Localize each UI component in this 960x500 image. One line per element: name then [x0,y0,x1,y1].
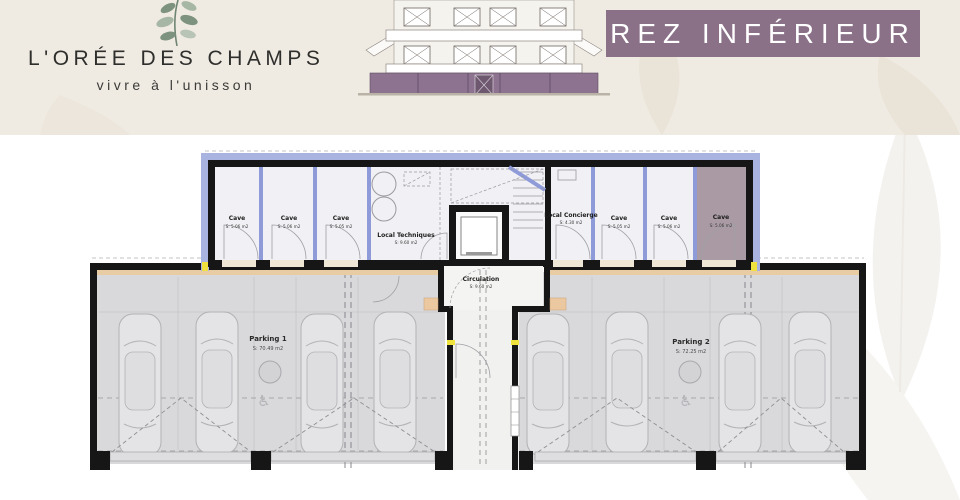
room-label-local-techniques: Local Techniques [377,232,435,239]
project-title: L'ORÉE DES CHAMPS [28,47,324,71]
window [511,386,519,436]
room-label-cave-2: Cave [281,215,297,222]
junction-marker [511,340,519,345]
column [679,361,701,383]
floorplan-page: ♿ ♿ [0,0,960,500]
floor-banner: REZ INFÉRIEUR [606,10,920,57]
room-label-cave-3: Cave [333,215,349,222]
junction-marker [202,262,208,271]
room-area-cave-5: S: 5.06 m2 [658,224,681,229]
room-area-parking-2: S: 72.25 m2 [676,349,706,355]
room-label-cave-5: Cave [661,215,677,222]
room-area-cave-3: S: 5.05 m2 [330,224,353,229]
room-area-cave-4: S: 5.05 m2 [608,224,631,229]
room-area-local-concierge: S: 4.30 m2 [560,220,583,225]
project-subtitle: vivre à l'unisson [28,77,324,93]
header-band: L'ORÉE DES CHAMPS vivre à l'unisson [0,0,960,135]
column [259,361,281,383]
logo: L'ORÉE DES CHAMPS vivre à l'unisson [28,0,324,93]
elevator-car [461,217,497,255]
room-label-cave-1: Cave [229,215,245,222]
facade-shoulder [424,298,438,310]
room-area-local-techniques: S: 9.60 m2 [395,240,418,245]
room-label-parking-2: Parking 2 [672,338,710,346]
room-area-circulation: S: 9.60 m2 [470,284,493,289]
accessible-parking-icon: ♿ [257,392,270,410]
junction-marker [751,262,757,271]
room-label-parking-1: Parking 1 [249,335,287,343]
plant-sprig-icon [144,0,208,46]
floor-banner-label: REZ INFÉRIEUR [610,18,916,50]
room-area-cave-1: S: 5.06 m2 [226,224,249,229]
room-label-cave-4: Cave [611,215,627,222]
room-area-cave-2: S: 5.06 m2 [278,224,301,229]
room-area-parking-1: S: 70.49 m2 [253,346,283,352]
junction-marker [447,340,455,345]
room-area-cave-6-highlighted: S: 5.06 m2 [710,223,733,228]
cellar-block [201,153,760,271]
room-label-circulation: Circulation [463,276,500,283]
room-label-cave-6-highlighted: Cave [713,214,729,221]
accessible-parking-icon: ♿ [679,392,692,410]
building-elevation-drawing [358,0,610,104]
room-label-local-concierge: Local Concierge [544,212,598,219]
facade-shoulder [550,298,566,310]
